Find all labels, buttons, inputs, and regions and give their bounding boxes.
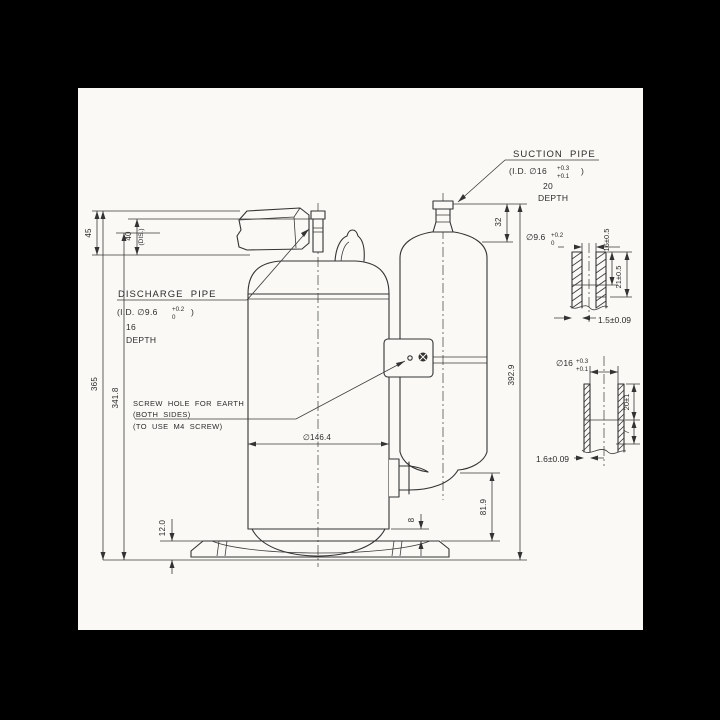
discharge-pipe-title: DISCHARGE PIPE xyxy=(118,289,216,300)
detail-discharge-tol-upper: +0.2 xyxy=(551,232,564,239)
dim-base-height-text: 12.0 xyxy=(158,519,167,536)
suction-pipe-bead xyxy=(433,201,453,209)
earth-screw-line3: (TO USE M4 SCREW) xyxy=(133,422,223,431)
suction-pipe-depth-word: DEPTH xyxy=(538,193,568,203)
dim-discharge-offset-text: 40 xyxy=(124,231,133,241)
suction-pipe-id: (I.D. ∅16 xyxy=(509,166,547,176)
engineering-drawing: 365 341.8 45 40 (DIS.) 392.9 xyxy=(0,0,720,720)
discharge-pipe-tol-lower: 0 xyxy=(172,314,176,321)
detail-discharge-bore: ∅9.6 xyxy=(526,232,545,242)
earth-screw-line1: SCREW HOLE FOR EARTH xyxy=(133,399,244,408)
suction-pipe-tol-upper: +0.3 xyxy=(557,165,570,172)
suction-pipe-tol-lower: +0.1 xyxy=(557,173,570,180)
detail-discharge-tol-lower: 0 xyxy=(551,240,555,247)
detail-suction-tol-upper: +0.3 xyxy=(576,358,589,365)
detail-discharge-depth-a: 16±0.5 xyxy=(602,229,611,252)
inlet-collar xyxy=(389,459,399,497)
screenshot-frame: 365 341.8 45 40 (DIS.) 392.9 xyxy=(0,0,720,720)
discharge-pipe-stub xyxy=(313,219,323,252)
dim-accumulator-height-text: 392.9 xyxy=(507,364,516,385)
dim-shell-height-text: 341.8 xyxy=(111,387,120,408)
dim-suction-stub-text: 32 xyxy=(494,217,503,227)
earth-screw-line2: (BOTH SIDES) xyxy=(133,410,191,419)
discharge-pipe-tol-upper: +0.2 xyxy=(172,306,185,313)
detail-suction-depth-a: 20±1 xyxy=(622,394,631,411)
dim-inlet-height-text: 81.9 xyxy=(479,498,488,515)
dim-top-clearance-text: 45 xyxy=(84,228,93,238)
terminal-cover xyxy=(237,208,309,250)
suction-pipe-stub xyxy=(433,209,453,232)
discharge-pipe-depth-word: DEPTH xyxy=(126,335,156,345)
discharge-pipe-depth-value: 16 xyxy=(126,322,136,332)
suction-pipe-depth-value: 20 xyxy=(543,181,553,191)
discharge-pipe-bead xyxy=(311,211,325,219)
discharge-pipe-id: (I.D. ∅9.6 xyxy=(117,307,158,317)
dim-shell-diameter-text: ∅146.4 xyxy=(303,433,332,442)
dim-shell-base-gap-text: 8 xyxy=(407,517,416,522)
detail-suction-wall-thickness: 1.6±0.09 xyxy=(536,454,569,464)
dim-discharge-note-text: (DIS.) xyxy=(138,229,145,246)
detail-discharge-depth-b: 21±0.5 xyxy=(614,266,623,289)
detail-suction-depth-b: 7 xyxy=(622,430,631,434)
dim-overall-height-text: 365 xyxy=(90,377,99,391)
detail-discharge-wall-thickness: 1.5±0.09 xyxy=(598,315,631,325)
detail-suction-tol-lower: +0.1 xyxy=(576,366,589,373)
suction-pipe-id-close: ) xyxy=(581,166,584,176)
discharge-pipe-id-close: ) xyxy=(191,307,194,317)
detail-suction-bore: ∅16 xyxy=(556,358,573,368)
suction-pipe-title: SUCTION PIPE xyxy=(513,149,596,160)
